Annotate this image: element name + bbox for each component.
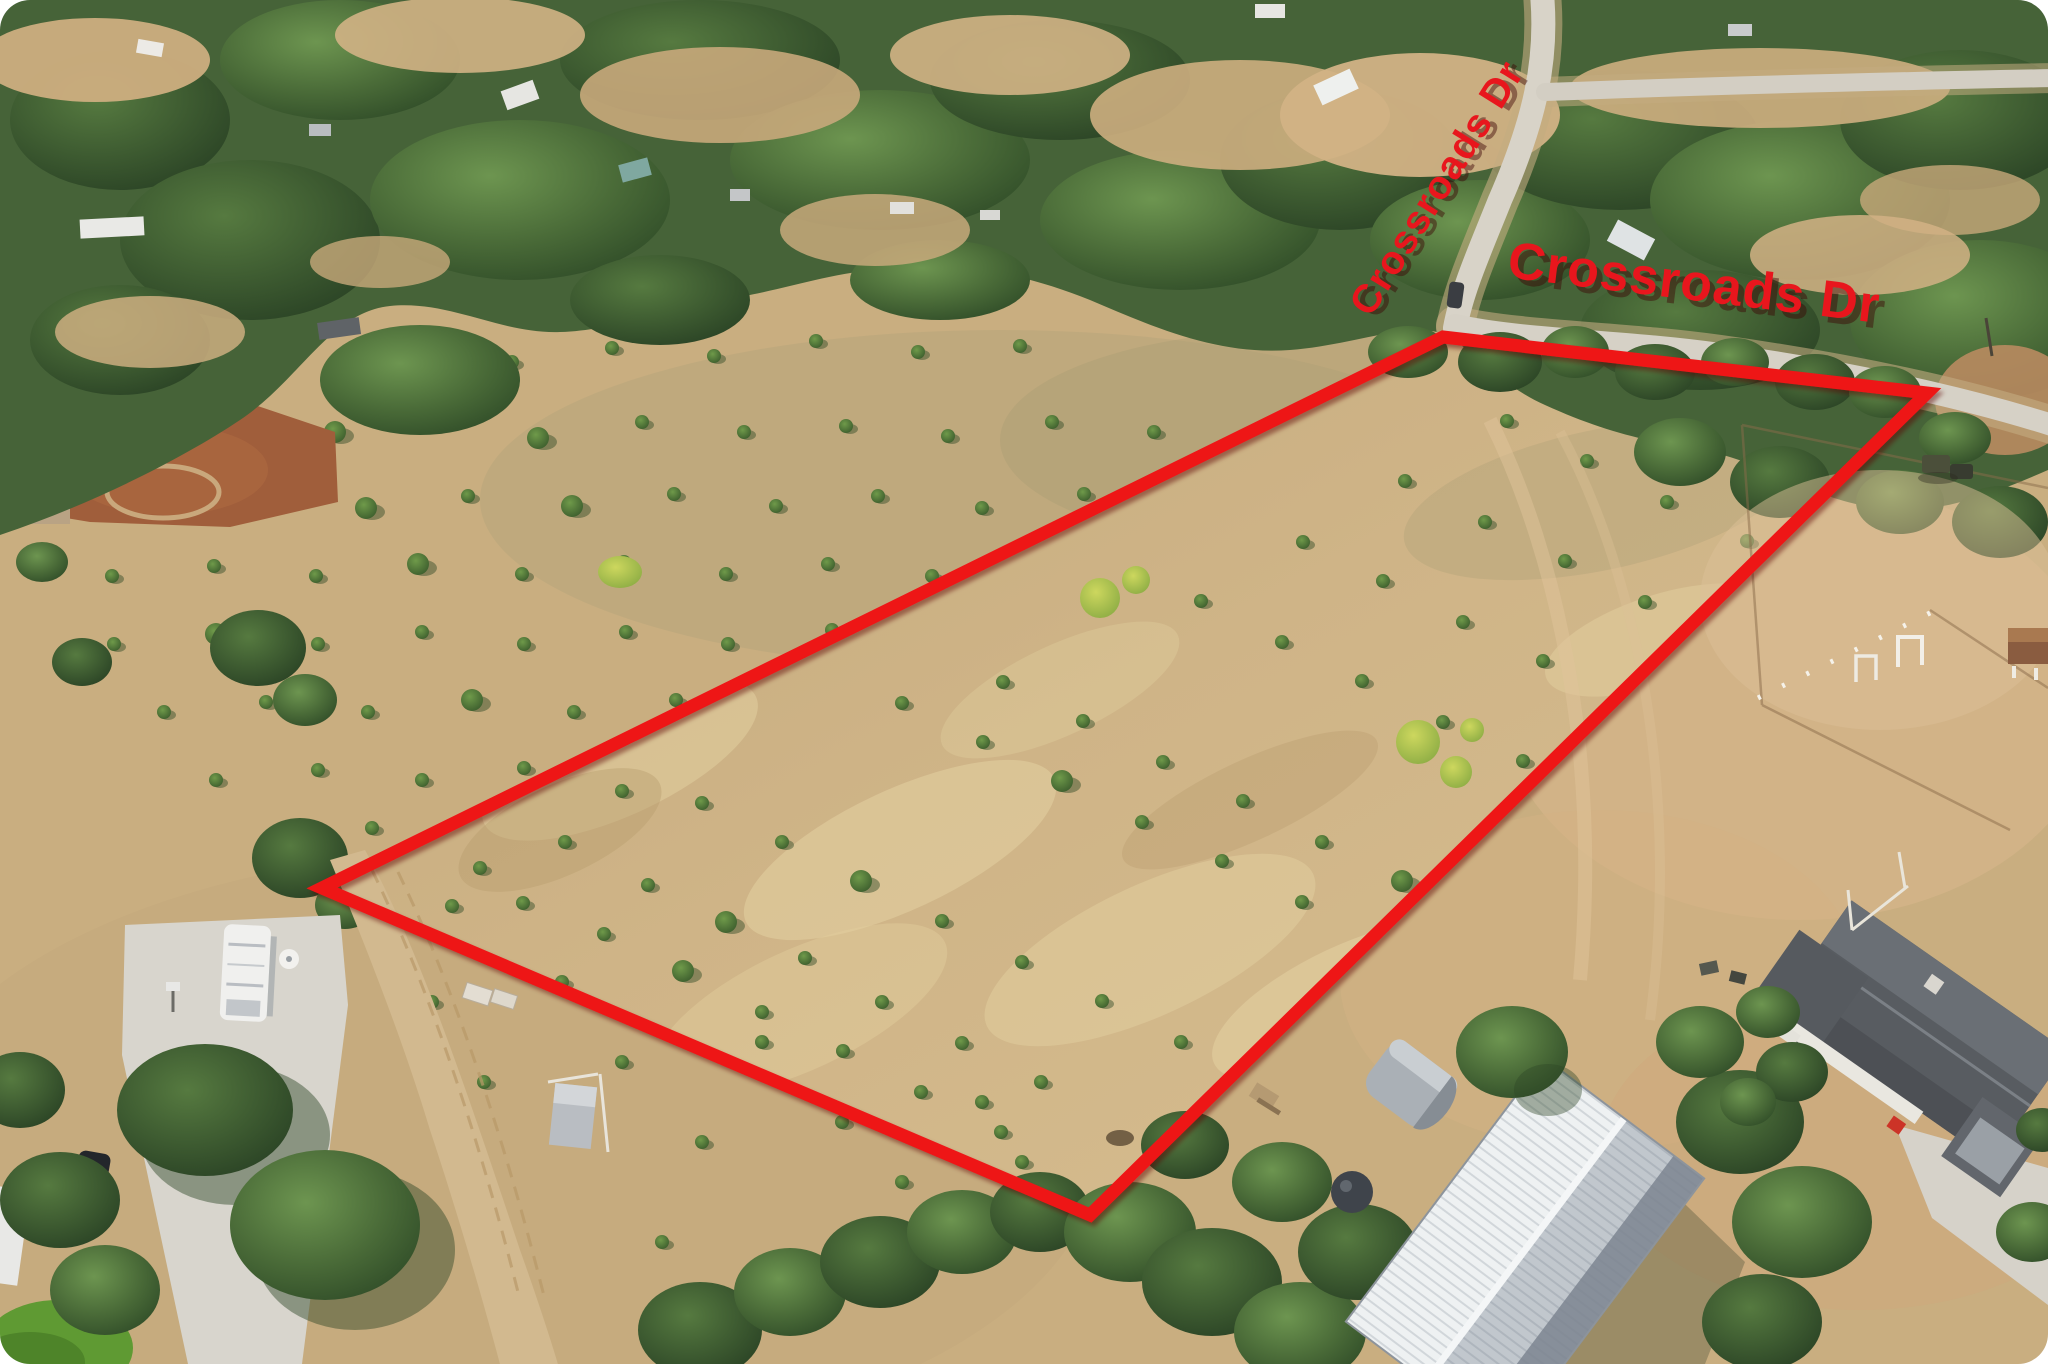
rv-trailer: [219, 924, 277, 1023]
water-tank: [1331, 1171, 1373, 1213]
aerial-photo: Crossroads Dr Crossroads Dr Crossroads D…: [0, 0, 2048, 1364]
lime-shrub: [598, 556, 642, 588]
long-white-barn: [80, 216, 145, 238]
aerial-photo-scene: Crossroads Dr Crossroads Dr Crossroads D…: [0, 0, 2048, 1364]
